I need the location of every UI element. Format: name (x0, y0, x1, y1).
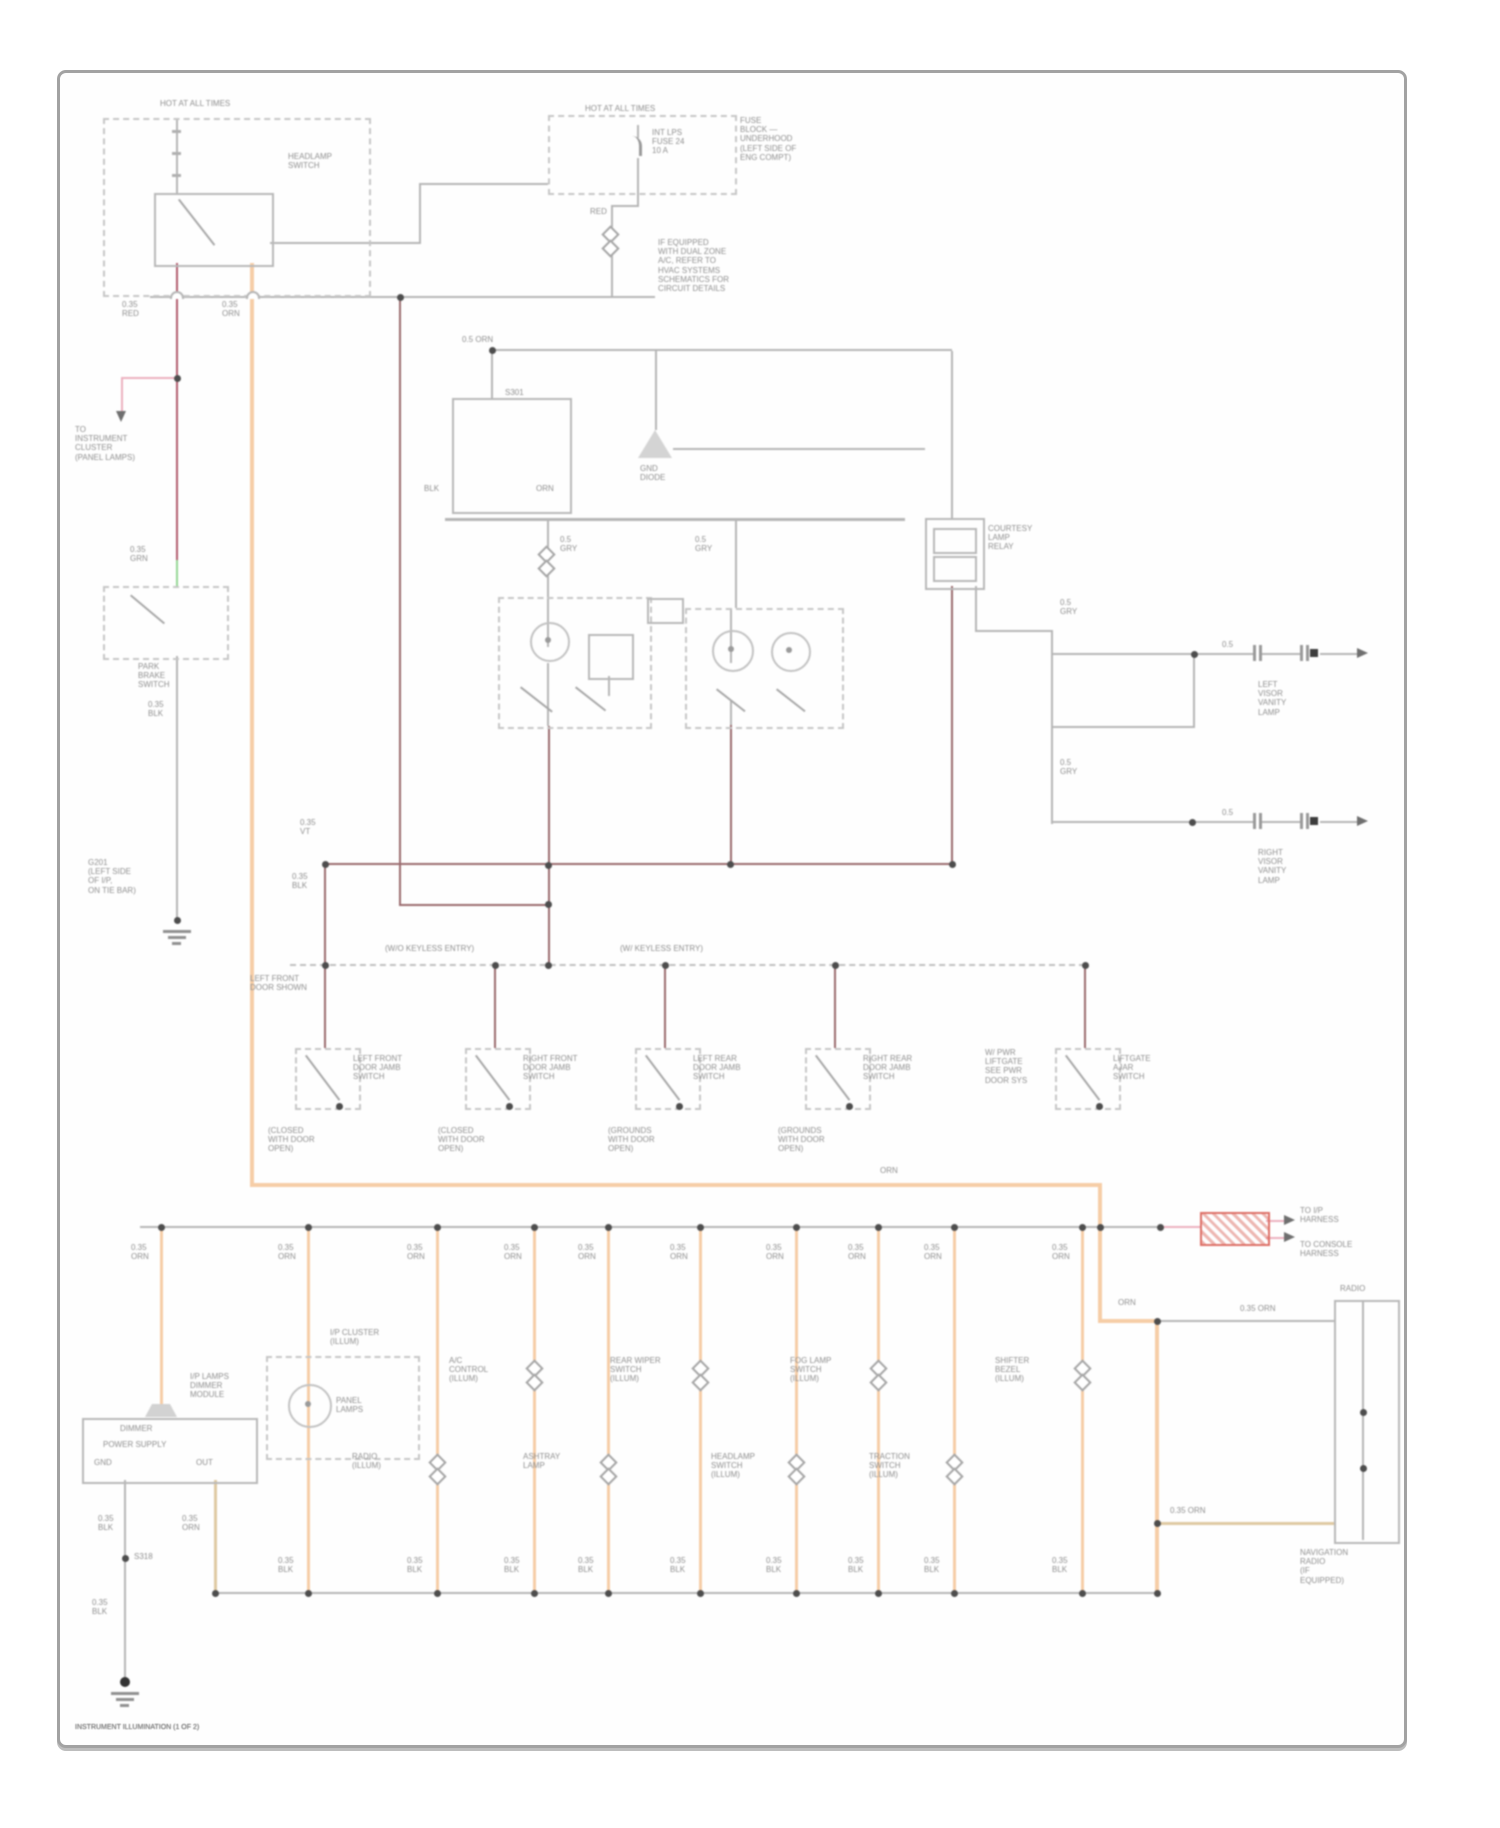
diagram-label: LIFTGATE AJAR SWITCH (1113, 1054, 1151, 1082)
junction-dot (1360, 1465, 1367, 1472)
diagram-label: SHIFTER BEZEL (ILLUM) (995, 1356, 1029, 1384)
junction-dot (697, 1590, 704, 1597)
diagram-label: NAVIGATION RADIO (IF EQUIPPED) (1300, 1548, 1348, 1585)
diagram-label: RIGHT REAR DOOR JAMB SWITCH (863, 1054, 912, 1082)
connector-end-dot (1310, 817, 1318, 825)
junction-dot (531, 1590, 538, 1597)
component-box-dashed (465, 1048, 531, 1110)
terminal-tick-icon (172, 130, 181, 133)
diagram-label: LEFT VISOR VANITY LAMP (1258, 680, 1286, 717)
junction-dot (545, 862, 552, 869)
diagram-label: I/P CLUSTER (ILLUM) (330, 1328, 379, 1346)
junction-dot (305, 1224, 312, 1231)
junction-dot (676, 1103, 683, 1110)
connector-bar-icon (1300, 813, 1303, 829)
component-box (452, 398, 572, 514)
wire-orange (699, 1228, 702, 1593)
wire-maroon (494, 966, 496, 1048)
junction-dot (875, 1590, 882, 1597)
diagram-label: 0.35 ORN (182, 1514, 200, 1532)
diagram-label: 0.35 ORN (848, 1243, 866, 1261)
wire-maroon (730, 725, 732, 865)
wire-gray (419, 183, 548, 185)
diagram-label: 0.35 BLK (504, 1556, 520, 1574)
junction-dot (1189, 819, 1196, 826)
wire-orange (877, 1228, 880, 1593)
diagram-label: RIGHT FRONT DOOR JAMB SWITCH (523, 1054, 578, 1082)
wire-tan (1157, 1522, 1334, 1525)
wire-gray (124, 1480, 126, 1682)
wire-orange (953, 1228, 956, 1593)
component-box-dashed (295, 1048, 361, 1110)
diagram-label: 0.35 BLK (848, 1556, 864, 1574)
wire-gray (140, 1226, 1160, 1228)
diagram-label: 0.5 ORN (462, 335, 493, 344)
diagram-label: LEFT FRONT DOOR SHOWN (250, 974, 307, 992)
terminal-tick-icon (172, 174, 181, 177)
diagram-label: TO INSTRUMENT CLUSTER (PANEL LAMPS) (75, 425, 135, 462)
component-box (933, 556, 977, 582)
wire-orange (533, 1228, 536, 1593)
wire-orange (160, 1228, 163, 1404)
diagram-label: 0.5 GRY (1060, 758, 1077, 776)
wire-orange (1155, 1319, 1159, 1596)
wire-gray (673, 448, 925, 450)
wire-maroon (1084, 966, 1086, 1048)
component-box (1334, 1300, 1400, 1544)
junction-dot (951, 1590, 958, 1597)
diagram-label: COURTESY LAMP RELAY (988, 524, 1032, 552)
diagram-label: RADIO (1340, 1284, 1365, 1293)
diagram-label: (CLOSED WITH DOOR OPEN) (438, 1126, 485, 1154)
wire-gray (1262, 821, 1302, 823)
junction-dot (489, 347, 496, 354)
diagram-label: 0.35 ORN (578, 1243, 596, 1261)
diagram-label: 0.5 (1222, 640, 1233, 649)
diagram-label: 0.35 BLK (148, 700, 164, 718)
component-box-dashed (635, 1048, 701, 1110)
lamp-filament-icon (545, 637, 551, 643)
diagram-label: 0.5 GRY (695, 535, 712, 553)
wire-gray (1051, 726, 1195, 728)
wire-gray (655, 351, 657, 430)
ground-icon (172, 942, 181, 945)
wire-gray (1051, 821, 1192, 823)
junction-dot (174, 917, 181, 924)
inline-connector-icon (787, 1467, 805, 1485)
diagram-label: BLK (424, 484, 439, 493)
connector-bar-icon (1306, 813, 1309, 829)
lamp-filament-icon (728, 646, 734, 652)
wire-gray (1158, 1320, 1334, 1322)
inline-connector-icon (537, 559, 555, 577)
diagram-label: TO CONSOLE HARNESS (1300, 1240, 1352, 1258)
diagram-label: PARK BRAKE SWITCH (138, 662, 170, 690)
inline-connector-icon (869, 1373, 887, 1391)
diagram-label: 0.35 ORN (278, 1243, 296, 1261)
wire-gray (1193, 654, 1195, 728)
diagram-label: HEADLAMP SWITCH (288, 152, 332, 170)
ground-icon (111, 1692, 139, 1695)
diagram-label: 0.35 ORN (222, 300, 240, 318)
wire-orange (607, 1228, 610, 1593)
component-box-dashed (685, 608, 844, 729)
diagram-label: OUT (196, 1458, 213, 1467)
connector-bar-icon (1259, 813, 1262, 829)
wire-maroon (399, 904, 550, 906)
diagram-label: TRACTION SWITCH (ILLUM) (869, 1452, 910, 1480)
diagram-label: POWER SUPPLY (103, 1440, 166, 1449)
connector-bar-icon (1253, 813, 1256, 829)
junction-dot (949, 861, 956, 868)
junction-dot (793, 1224, 800, 1231)
wire-gray (1194, 653, 1253, 655)
junction-dot (322, 962, 329, 969)
component-box (154, 193, 274, 267)
wire-maroon (324, 966, 326, 1048)
diagram-label: G201 (LEFT SIDE OF I/P, ON TIE BAR) (88, 858, 136, 895)
wire-green (176, 560, 178, 586)
junction-dot (158, 1224, 165, 1231)
diagram-label: IF EQUIPPED WITH DUAL ZONE A/C, REFER TO… (658, 238, 729, 293)
junction-dot (1154, 1318, 1161, 1325)
offpage-arrow-icon (1284, 1215, 1295, 1225)
lamp-filament-icon (786, 647, 792, 653)
connector-block (1200, 1212, 1270, 1246)
wire-maroon (324, 863, 326, 966)
inline-connector-icon (1073, 1373, 1091, 1391)
diagram-label: (CLOSED WITH DOOR OPEN) (268, 1126, 315, 1154)
diagram-label: ORN (536, 484, 554, 493)
diagram-label: FUSE BLOCK — UNDERHOOD (LEFT SIDE OF ENG… (740, 116, 796, 162)
wire-gray (1262, 653, 1302, 655)
diagram-label: 0.35 ORN (1170, 1506, 1206, 1515)
diagram-label: ORN (1118, 1298, 1136, 1307)
component-box-dashed (1055, 1048, 1121, 1110)
junction-dot (506, 1103, 513, 1110)
junction-dot (545, 962, 552, 969)
junction-dot (336, 1103, 343, 1110)
junction-dot (305, 1590, 312, 1597)
wire-gray (445, 518, 905, 521)
diagram-label: GND DIODE (640, 464, 665, 482)
junction-dot (492, 962, 499, 969)
diagram-label: RADIO (ILLUM) (352, 1452, 381, 1470)
diagram-label: 0.35 BLK (92, 1598, 108, 1616)
inline-connector-icon (691, 1373, 709, 1391)
diagram-label: 0.35 BLK (98, 1514, 114, 1532)
diagram-label: (GROUNDS WITH DOOR OPEN) (778, 1126, 825, 1154)
terminal-dot (120, 1677, 130, 1687)
wire-maroon (834, 966, 836, 1048)
component-box (933, 528, 977, 554)
wire-crossover-icon (170, 291, 184, 299)
junction-dot (1079, 1590, 1086, 1597)
diagram-label: 0.5 GRY (1060, 598, 1077, 616)
diagram-label: LEFT FRONT DOOR JAMB SWITCH (353, 1054, 402, 1082)
diagram-label: 0.35 ORN (407, 1243, 425, 1261)
wire-orange (250, 1183, 1102, 1187)
junction-dot (122, 1555, 129, 1562)
wire-orange (795, 1228, 798, 1593)
diagram-label: 0.5 (1222, 808, 1233, 817)
junction-dot (1079, 1224, 1086, 1231)
connector-bar-icon (1259, 645, 1262, 661)
component-box-dashed (805, 1048, 871, 1110)
wire-gray (975, 630, 1053, 632)
wire-orange (1081, 1228, 1084, 1593)
diagram-label: RED (590, 207, 607, 216)
wire-dashed (290, 964, 1085, 966)
wire-crossover-icon (246, 291, 260, 299)
wire-orange (436, 1228, 439, 1593)
junction-dot (531, 1224, 538, 1231)
junction-dot (1082, 962, 1089, 969)
diagram-label: 0.35 BLK (1052, 1556, 1068, 1574)
diagram-label: DIMMER (120, 1424, 152, 1433)
diagram-label: 0.35 ORN (1052, 1243, 1070, 1261)
diagram-label: 0.35 GRN (130, 545, 148, 563)
diagram-label: INT LPS FUSE 24 10 A (652, 128, 684, 156)
wire-pink (122, 377, 178, 379)
junction-dot (434, 1224, 441, 1231)
diagram-label: REAR WIPER SWITCH (ILLUM) (610, 1356, 661, 1384)
diagram-label: 0.35 ORN (670, 1243, 688, 1261)
wire-orange (250, 263, 254, 1185)
junction-dot (1191, 651, 1198, 658)
wire-crimson (176, 378, 178, 560)
ground-icon (120, 1704, 129, 1707)
wire-pink (121, 377, 123, 411)
lamp-filament-icon (305, 1401, 311, 1407)
diagram-label: 0.35 ORN (1240, 1304, 1276, 1313)
junction-dot (1360, 1409, 1367, 1416)
wire-gray (612, 205, 639, 207)
diagram-label: I/P LAMPS DIMMER MODULE (190, 1372, 229, 1400)
offpage-arrow-icon (1284, 1232, 1295, 1242)
wire-orange (1098, 1319, 1158, 1323)
component-box-dashed (548, 115, 737, 195)
diagram-label: ASHTRAY LAMP (523, 1452, 560, 1470)
junction-dot (397, 294, 404, 301)
diagram-label: A/C CONTROL (ILLUM) (449, 1356, 488, 1384)
diagram-label: GND (94, 1458, 112, 1467)
diagram-label: (W/O KEYLESS ENTRY) (385, 944, 474, 953)
connector-bar-icon (1306, 645, 1309, 661)
inline-connector-icon (945, 1467, 963, 1485)
offpage-arrow-icon (116, 411, 126, 422)
connector-bar-icon (1300, 645, 1303, 661)
inline-connector-icon (601, 239, 619, 257)
ground-icon (116, 1698, 134, 1701)
diagram-label: 0.35 RED (122, 300, 139, 318)
junction-dot (727, 861, 734, 868)
diagram-label: 0.35 ORN (131, 1243, 149, 1261)
junction-dot (1154, 1590, 1161, 1597)
diagram-label: TO I/P HARNESS (1300, 1206, 1339, 1224)
junction-dot (1096, 1103, 1103, 1110)
wire-gray (176, 656, 178, 920)
wire-gray (1051, 653, 1194, 655)
wire-gray (1320, 821, 1357, 823)
diagram-label: 0.35 ORN (504, 1243, 522, 1261)
diagram-label: ORN (880, 1166, 898, 1175)
connector-bar-icon (1253, 645, 1256, 661)
screenshot-canvas: HOT AT ALL TIMESHOT AT ALL TIMESHEADLAMP… (0, 0, 1500, 1828)
terminal-tick-icon (172, 152, 181, 155)
diagram-label: (GROUNDS WITH DOOR OPEN) (608, 1126, 655, 1154)
junction-dot (212, 1590, 219, 1597)
junction-dot (662, 962, 669, 969)
junction-dot (951, 1224, 958, 1231)
offpage-arrow-icon (1357, 648, 1368, 658)
connector-end-dot (1310, 649, 1318, 657)
diagram-label: RIGHT VISOR VANITY LAMP (1258, 848, 1286, 885)
diagram-label: 0.35 BLK (278, 1556, 294, 1574)
junction-dot (1157, 1224, 1164, 1231)
diagram-label: W/ PWR LIFTGATE SEE PWR DOOR SYS (985, 1048, 1027, 1085)
page-footer: INSTRUMENT ILLUMINATION (1 OF 2) (75, 1724, 199, 1732)
junction-dot (832, 962, 839, 969)
inline-connector-icon (525, 1373, 543, 1391)
junction-dot (846, 1103, 853, 1110)
diagram-label: 0.35 BLK (924, 1556, 940, 1574)
wiring-diagram-layer: HOT AT ALL TIMESHOT AT ALL TIMESHEADLAMP… (0, 0, 1500, 1828)
wire-gray (951, 351, 953, 518)
wire-maroon (548, 726, 550, 966)
diagram-label: HOT AT ALL TIMES (585, 104, 655, 113)
junction-dot (605, 1224, 612, 1231)
diagram-label: HOT AT ALL TIMES (160, 99, 230, 108)
wire-gray (492, 349, 952, 351)
junction-dot (434, 1590, 441, 1597)
diagram-label: LEFT REAR DOOR JAMB SWITCH (693, 1054, 741, 1082)
diagram-label: 0.35 BLK (578, 1556, 594, 1574)
ground-icon (163, 930, 191, 933)
diagram-label: S318 (134, 1552, 153, 1561)
diagram-label: 0.35 BLK (407, 1556, 423, 1574)
diagram-label: 0.35 BLK (292, 872, 308, 890)
wire-gray (419, 183, 421, 244)
diagram-label: 0.35 VT (300, 818, 316, 836)
diagram-label: PANEL LAMPS (336, 1396, 363, 1414)
diagram-label: HEADLAMP SWITCH (ILLUM) (711, 1452, 755, 1480)
wire-gray (215, 1592, 1159, 1594)
wire-orange (1098, 1183, 1102, 1323)
wire-pink (1160, 1226, 1202, 1228)
junction-dot (697, 1224, 704, 1231)
diagram-label: 0.35 ORN (924, 1243, 942, 1261)
diagram-label: 0.35 ORN (766, 1243, 784, 1261)
component-box (647, 598, 684, 624)
junction-dot (605, 1590, 612, 1597)
wire-gray (735, 521, 737, 608)
diagram-label: (W/ KEYLESS ENTRY) (620, 944, 703, 953)
diagram-label: S301 (505, 388, 524, 397)
wire-gray (1320, 653, 1357, 655)
ground-icon (168, 936, 186, 939)
offpage-arrow-icon (1357, 816, 1368, 826)
wire-maroon (399, 298, 401, 906)
wire-gray (975, 586, 977, 632)
junction-dot (793, 1590, 800, 1597)
wire-maroon (325, 863, 953, 865)
inline-connector-icon (599, 1467, 617, 1485)
diagram-label: FOG LAMP SWITCH (ILLUM) (790, 1356, 831, 1384)
junction-dot (174, 375, 181, 382)
diagram-label: 0.5 GRY (560, 535, 577, 553)
junction-dot (322, 861, 329, 868)
junction-dot (1154, 1520, 1161, 1527)
connector-wedge-icon (145, 1404, 177, 1417)
diode-icon (638, 430, 672, 458)
wire-maroon (951, 586, 953, 865)
component-box (588, 634, 634, 680)
wire-maroon (664, 966, 666, 1048)
wire-gray (1192, 821, 1253, 823)
wire-gray (491, 350, 493, 398)
inline-connector-icon (428, 1467, 446, 1485)
diagram-label: 0.35 BLK (670, 1556, 686, 1574)
junction-dot (545, 901, 552, 908)
component-box (82, 1418, 258, 1484)
diagram-label: 0.35 BLK (766, 1556, 782, 1574)
junction-dot (875, 1224, 882, 1231)
component-box-dashed (103, 586, 229, 660)
junction-dot (1097, 1224, 1104, 1231)
wire-tan (214, 1480, 217, 1594)
